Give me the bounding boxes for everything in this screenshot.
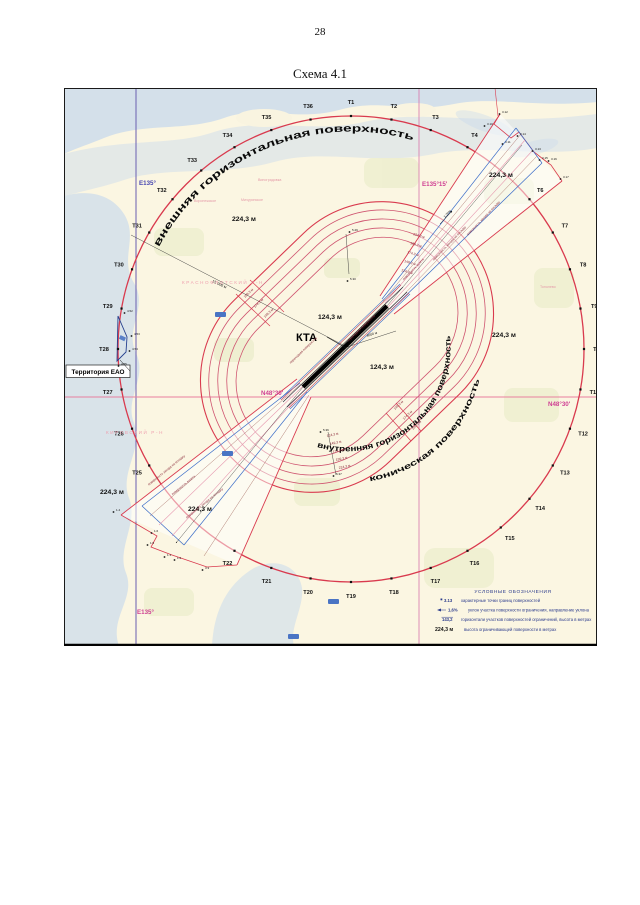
point-marker [333,475,335,477]
t-point-label: T31 [132,224,142,230]
point-marker [320,431,322,433]
point-marker [200,169,202,171]
boundary-point-label: 1.4 [116,508,121,512]
point-marker [579,307,581,309]
point-marker [147,544,149,546]
boundary-point-label: 3.13 [535,147,541,151]
point-marker [148,231,150,233]
boundary-point-label: 3.10 [487,122,493,126]
legend-text-1: характерные точки границ поверхностей [461,598,541,603]
t-point-label: T19 [346,594,356,600]
point-marker [548,160,550,162]
point-marker [430,129,432,131]
meridian-e135-label-top: E135° [139,180,156,187]
point-marker [466,550,468,552]
t-point-label: T33 [187,158,197,164]
point-marker [120,307,122,309]
t-point-label: T18 [389,590,399,596]
point-marker [118,365,120,367]
t-point-label: T16 [470,561,480,567]
point-marker [466,146,468,148]
point-marker [502,143,504,145]
height-label: 224,3 м [489,172,513,179]
point-marker [484,125,486,127]
point-marker [148,464,150,466]
legend-key-4: 224,3 м [435,627,453,633]
point-marker [129,350,131,352]
t-point-label: T17 [431,579,441,585]
legend-point-marker [441,599,443,601]
map-canvas: Территория ЕАО внешняя горизонтальная по… [64,88,597,646]
point-marker [569,428,571,430]
t-point-label: T13 [560,471,570,477]
boundary-point-label: 5.29 [352,228,358,232]
place-label: Воронежское [194,199,216,203]
point-marker [233,146,235,148]
parallel-n48-30-label-left: N48°30' [261,390,284,397]
t-point-label: T6 [537,188,544,194]
point-marker [270,129,272,131]
legend-text-3: горизонтали участков поверхностей ограни… [461,617,592,622]
point-marker [528,498,530,500]
t-point-label: T8 [580,263,587,269]
meridian-e135-label-bottom: E135° [137,609,154,616]
boundary-point-label: 4.52 [127,309,133,313]
place-label: Виноградовка [258,178,281,182]
boundary-point-label: 3.15 [542,156,548,160]
t-point-label: T3 [432,115,439,121]
t-point-label: T36 [303,104,313,110]
point-marker [202,569,204,571]
point-marker [390,118,392,120]
point-marker [430,567,432,569]
page-number: 28 [0,26,640,38]
t-point-label: T20 [303,590,313,596]
boundary-point-label: 1.5 [150,541,155,545]
height-label: 224,3 м [232,216,256,223]
meridian-e135-15-label: E135°15' [422,181,448,188]
territory-label: Территория ЕАО [72,369,125,376]
point-marker [552,464,554,466]
point-marker [569,268,571,270]
point-marker [151,532,153,534]
height-label: 124,3 м [318,314,342,321]
legend-key-1: 3.13 [444,598,453,603]
point-marker [539,159,541,161]
t-point-label: T29 [103,304,113,310]
boundary-point-label: 5.30 [350,277,356,281]
point-marker [517,135,519,137]
boundary-point-label: 4.54 [132,347,138,351]
parallel-n48-30-label-right: N48°30' [548,401,571,408]
boundary-point-label: 3.11 [505,140,511,144]
t-point-label: T34 [223,133,234,139]
point-marker [233,550,235,552]
point-marker [171,198,173,200]
boundary-point-label: 1.6 [154,529,159,533]
t-point-label: T21 [262,579,272,585]
t-point-label: T7 [562,224,569,230]
point-marker [532,150,534,152]
legend-text-2: уклон участка поверхности ограничения, н… [468,608,590,613]
t-point-label: T35 [262,115,272,121]
point-marker [499,113,501,115]
document-page: 28 Схема 4.1 [0,0,640,905]
boundary-point-label: 4.55 [121,362,127,366]
point-marker [309,118,311,120]
point-marker [500,526,502,528]
t-point-label: T28 [99,347,109,353]
point-marker [560,178,562,180]
point-marker [552,231,554,233]
t-point-label: T32 [157,188,167,194]
point-marker [583,348,585,350]
legend-key-3: 143,2 [442,617,453,622]
point-marker [350,115,352,117]
boundary-point-label: 3.16 [551,157,557,161]
boundary-point-label: 4.53 [134,332,140,336]
point-marker [579,388,581,390]
boundary-point-label: 5.37 [336,472,342,476]
point-marker [350,581,352,583]
district-label: КРАСНОФЛОТСКИЙ Р-Н [182,278,264,285]
point-marker [131,268,133,270]
boundary-point-label: 3.12 [502,110,508,114]
place-label: Тополево [540,285,556,289]
figure-title: Схема 4.1 [0,66,640,82]
t-point-label: T15 [505,536,515,542]
t-point-label: T12 [578,431,588,437]
t-point-label: T27 [103,390,113,396]
boundary-point-label: 1.1 [167,553,172,557]
point-marker [349,231,351,233]
height-label: 224,3 м [492,332,516,339]
point-marker [164,556,166,558]
legend-title: УСЛОВНЫЕ ОБОЗНАЧЕНИЯ [474,589,551,595]
point-marker [117,348,119,350]
point-marker [113,511,115,513]
height-label: 224,3 м [100,489,124,496]
boundary-point-label: 5.36 [323,428,329,432]
point-marker [120,388,122,390]
boundary-point-label: 1.2 [177,556,182,560]
t-point-label: T2 [391,104,398,110]
district-label: КИРОВСКИЙ Р-Н [106,428,164,435]
t-point-label: T11 [590,390,597,396]
t-point-label: T30 [114,263,124,269]
t-point-label: T14 [535,506,546,512]
place-label: Мичуринское [241,198,263,202]
boundary-point-label: 3.3 [205,566,210,570]
boundary-point-label: 3.17 [563,175,569,179]
point-marker [390,577,392,579]
point-marker [270,567,272,569]
legend-text-4: высота ограничивающей поверхности в метр… [464,627,557,632]
t-point-label: T25 [132,471,142,477]
point-marker [174,559,176,561]
point-marker [528,198,530,200]
t-point-label: T4 [471,133,478,139]
legend-key-2: 1,6% [448,608,458,613]
point-marker [347,280,349,282]
scheme-map: Территория ЕАО внешняя горизонтальная по… [64,88,597,646]
t-point-label: T22 [223,561,233,567]
point-marker [131,335,133,337]
point-marker [124,312,126,314]
height-label: 124,3 м [370,364,394,371]
point-marker [309,577,311,579]
t-point-label: T1 [348,100,355,106]
boundary-point-label: 3.14 [520,132,526,136]
